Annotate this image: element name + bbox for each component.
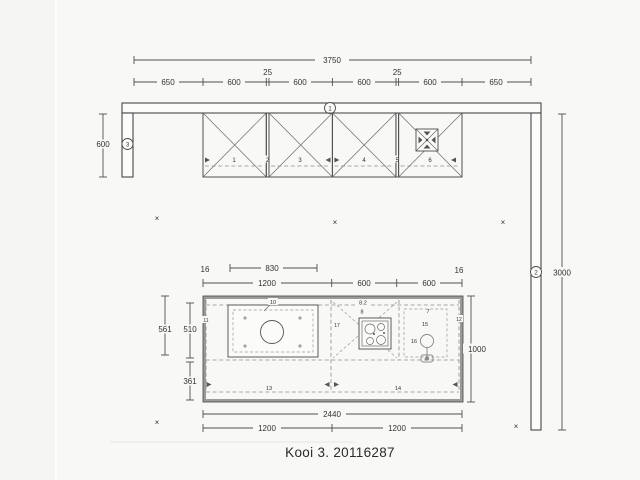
island-sink-unit-7: 7 15 16 — [404, 309, 447, 362]
dim-table-830: 830 — [265, 264, 279, 273]
dim-filler-25-left: 25 — [263, 68, 272, 77]
island-unit-8-2-label: 8.2 — [359, 301, 367, 307]
wall-filler-2: 2 — [265, 113, 272, 177]
dim-island-600-a: 600 — [357, 279, 371, 288]
dim-600-a: 600 — [227, 78, 241, 87]
island-unit-12-label: 12 — [456, 317, 462, 323]
door-swing-arrow — [205, 158, 210, 163]
hob-icon — [359, 318, 391, 349]
door-swing-arrow — [453, 382, 458, 387]
dim-bottom-1200-right: 1200 — [388, 424, 406, 433]
tap-icon — [421, 335, 434, 363]
dim-top-segments: 650 600 600 600 600 650 25 25 — [134, 68, 531, 87]
wall-cabinet-1: 1 — [203, 113, 266, 177]
cross-marker: × — [155, 214, 160, 223]
kitchen-island: 10 8.2 8 — [202, 296, 463, 402]
island-hob-unit-8: 8.2 8 — [355, 299, 391, 349]
island-unit-10-label: 10 — [270, 300, 276, 306]
dim-island-600-b: 600 — [422, 279, 436, 288]
wall-unit-4-label: 4 — [362, 158, 366, 164]
wall-cabinet-6: 6 — [399, 113, 462, 177]
wall-unit-6-label: 6 — [428, 158, 432, 164]
dim-bottom-1200-left: 1200 — [258, 424, 276, 433]
dim-510: 510 — [183, 325, 197, 334]
door-swing-arrow — [207, 382, 212, 387]
dim-right-wall-label: 3000 — [553, 269, 571, 278]
drawing-title: Kooi 3. 20116287 — [285, 445, 395, 460]
dim-600-d: 600 — [423, 78, 437, 87]
extractor-hood-icon — [416, 129, 438, 151]
dim-island-right: 1000 — [463, 296, 491, 402]
dim-total-label: 3750 — [323, 56, 341, 65]
dim-island-bottom: 2440 1200 1200 — [203, 410, 462, 434]
dim-island-1200: 1200 — [258, 279, 276, 288]
dim-right-wall: 3000 — [548, 114, 577, 430]
dim-left-wall: 600 — [91, 114, 115, 177]
dim-561: 561 — [158, 325, 172, 334]
floor-plan-page: 3750 650 600 600 600 600 650 2 — [0, 0, 640, 480]
door-swing-arrow — [334, 158, 339, 163]
wall-cabinet-4: 4 — [332, 113, 396, 177]
island-unit-8-label: 8 — [360, 310, 363, 316]
cross-marker: × — [514, 422, 519, 431]
dim-600-c: 600 — [357, 78, 371, 87]
wall-filler-5: 5 — [394, 113, 401, 177]
wall-cabinet-3: 3 — [269, 113, 332, 177]
island-door-arrows — [207, 382, 458, 387]
island-unit-16-label: 16 — [411, 339, 417, 345]
dim-island-left: 561 510 361 — [154, 296, 201, 400]
dim-island-top: 16 16 830 1200 600 600 — [201, 264, 464, 289]
dim-361: 361 — [183, 377, 197, 386]
wall-markers: 1 2 3 — [122, 103, 542, 278]
wall-unit-3-label: 3 — [298, 158, 302, 164]
cross-marker: × — [501, 218, 506, 227]
dim-600-b: 600 — [293, 78, 307, 87]
dim-1000: 1000 — [468, 345, 486, 354]
island-unit-17-label: 17 — [334, 323, 340, 329]
dim-top-total: 3750 — [134, 55, 531, 65]
door-swing-arrow — [451, 158, 456, 163]
island-table-unit-10: 10 — [228, 298, 318, 357]
island-unit-13-label: 13 — [266, 386, 272, 392]
dim-2440: 2440 — [323, 410, 341, 419]
wall-unit-1-label: 1 — [232, 158, 236, 164]
cross-marker: × — [155, 418, 160, 427]
door-swing-arrow — [334, 382, 339, 387]
dim-overhang-left: 16 — [201, 265, 210, 274]
island-unit-14-label: 14 — [395, 386, 401, 392]
island-unit-11-label: 11 — [203, 318, 208, 324]
cross-marker: × — [333, 218, 338, 227]
dim-650-left: 650 — [161, 78, 175, 87]
door-swing-arrow — [326, 158, 331, 163]
island-unit-7-label: 7 — [426, 309, 429, 315]
dim-overhang-right: 16 — [455, 266, 464, 275]
kitchen-plan-drawing: 3750 650 600 600 600 600 650 2 — [0, 0, 640, 480]
wall-cabinets: 1 2 3 — [203, 113, 462, 177]
dim-left-wall-label: 600 — [96, 140, 110, 149]
dim-filler-25-right: 25 — [393, 68, 402, 77]
door-swing-arrow — [325, 382, 330, 387]
dim-650-right: 650 — [489, 78, 503, 87]
island-unit-15-label: 15 — [422, 322, 428, 328]
